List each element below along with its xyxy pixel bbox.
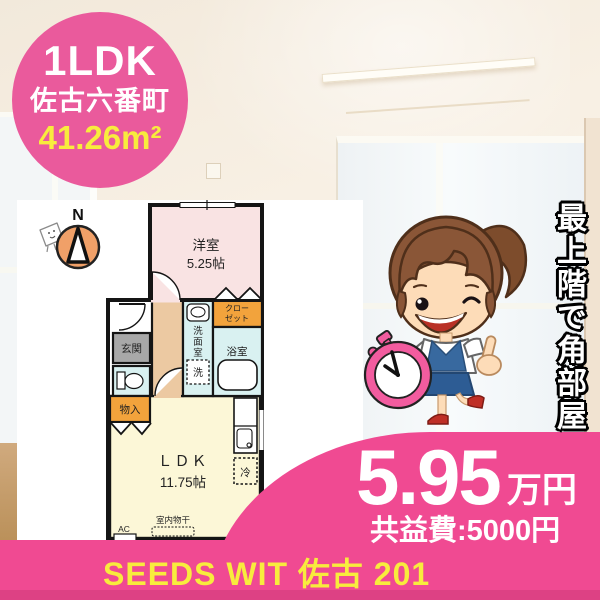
washroom-label-char: 室 <box>193 347 203 359</box>
window-marking <box>260 410 264 450</box>
western-room-size: 5.25帖 <box>187 256 225 271</box>
catch-copy-vertical: 最上階で角部屋 <box>546 202 590 442</box>
common-fee: 共益費:5000円 <box>370 516 600 547</box>
address-town: 佐古六番町 <box>12 83 188 119</box>
bathtub-icon <box>218 360 257 390</box>
closet-label: ゼット <box>225 313 249 323</box>
washroom-label-char: 面 <box>193 337 203 348</box>
toilet-bowl-icon <box>125 374 143 389</box>
toilet-tank-icon <box>117 372 125 389</box>
mascot-shoe <box>428 414 448 424</box>
mascot-neck <box>440 333 452 342</box>
sink-bowl-icon <box>191 307 205 317</box>
wall-switch <box>206 163 221 179</box>
property-listing-image: 洗 面 室 洗 クロー ゼット 浴室 洋室 5.25帖 玄関 <box>0 0 600 600</box>
storage-label: 物入 <box>120 403 141 416</box>
faucet-icon <box>247 443 251 447</box>
stopwatch-icon <box>365 330 431 408</box>
mascot-eye <box>416 298 429 311</box>
indoor-drying-label: 室内物干 <box>156 515 191 525</box>
bathroom-label: 浴室 <box>227 345 248 358</box>
property-badge: 1LDK 佐古六番町 41.26m² <box>12 12 188 188</box>
rent-amount: 5.95 <box>356 438 500 516</box>
mascot-character <box>360 205 528 430</box>
mascot-eye-highlight <box>417 299 421 303</box>
rent-unit: 万円 <box>507 473 577 508</box>
ac-label: AC <box>118 524 130 534</box>
door-gap <box>151 298 180 303</box>
entrance-label: 玄関 <box>121 342 142 355</box>
fridge-label: 冷 <box>240 466 251 479</box>
price-block: 5.95 万円 共益費:5000円 <box>356 438 600 547</box>
building-name: SEEDS WIT 佐古 201 <box>103 549 430 595</box>
closet-label: クロー <box>225 304 249 313</box>
washroom-label-char: 洗 <box>193 325 203 337</box>
compass-n-label: N <box>72 207 84 224</box>
ldk-size: 11.75帖 <box>160 475 206 490</box>
mascot-shoe <box>468 396 484 408</box>
compass-icon: N <box>28 196 128 278</box>
washer-label: 洗 <box>193 367 203 379</box>
door-gap <box>154 394 181 399</box>
western-room-label: 洋室 <box>193 237 220 253</box>
layout-type: 1LDK <box>12 39 188 83</box>
floor-area: 41.26m² <box>12 119 188 157</box>
ldk-label: ＬＤＫ <box>157 453 208 470</box>
